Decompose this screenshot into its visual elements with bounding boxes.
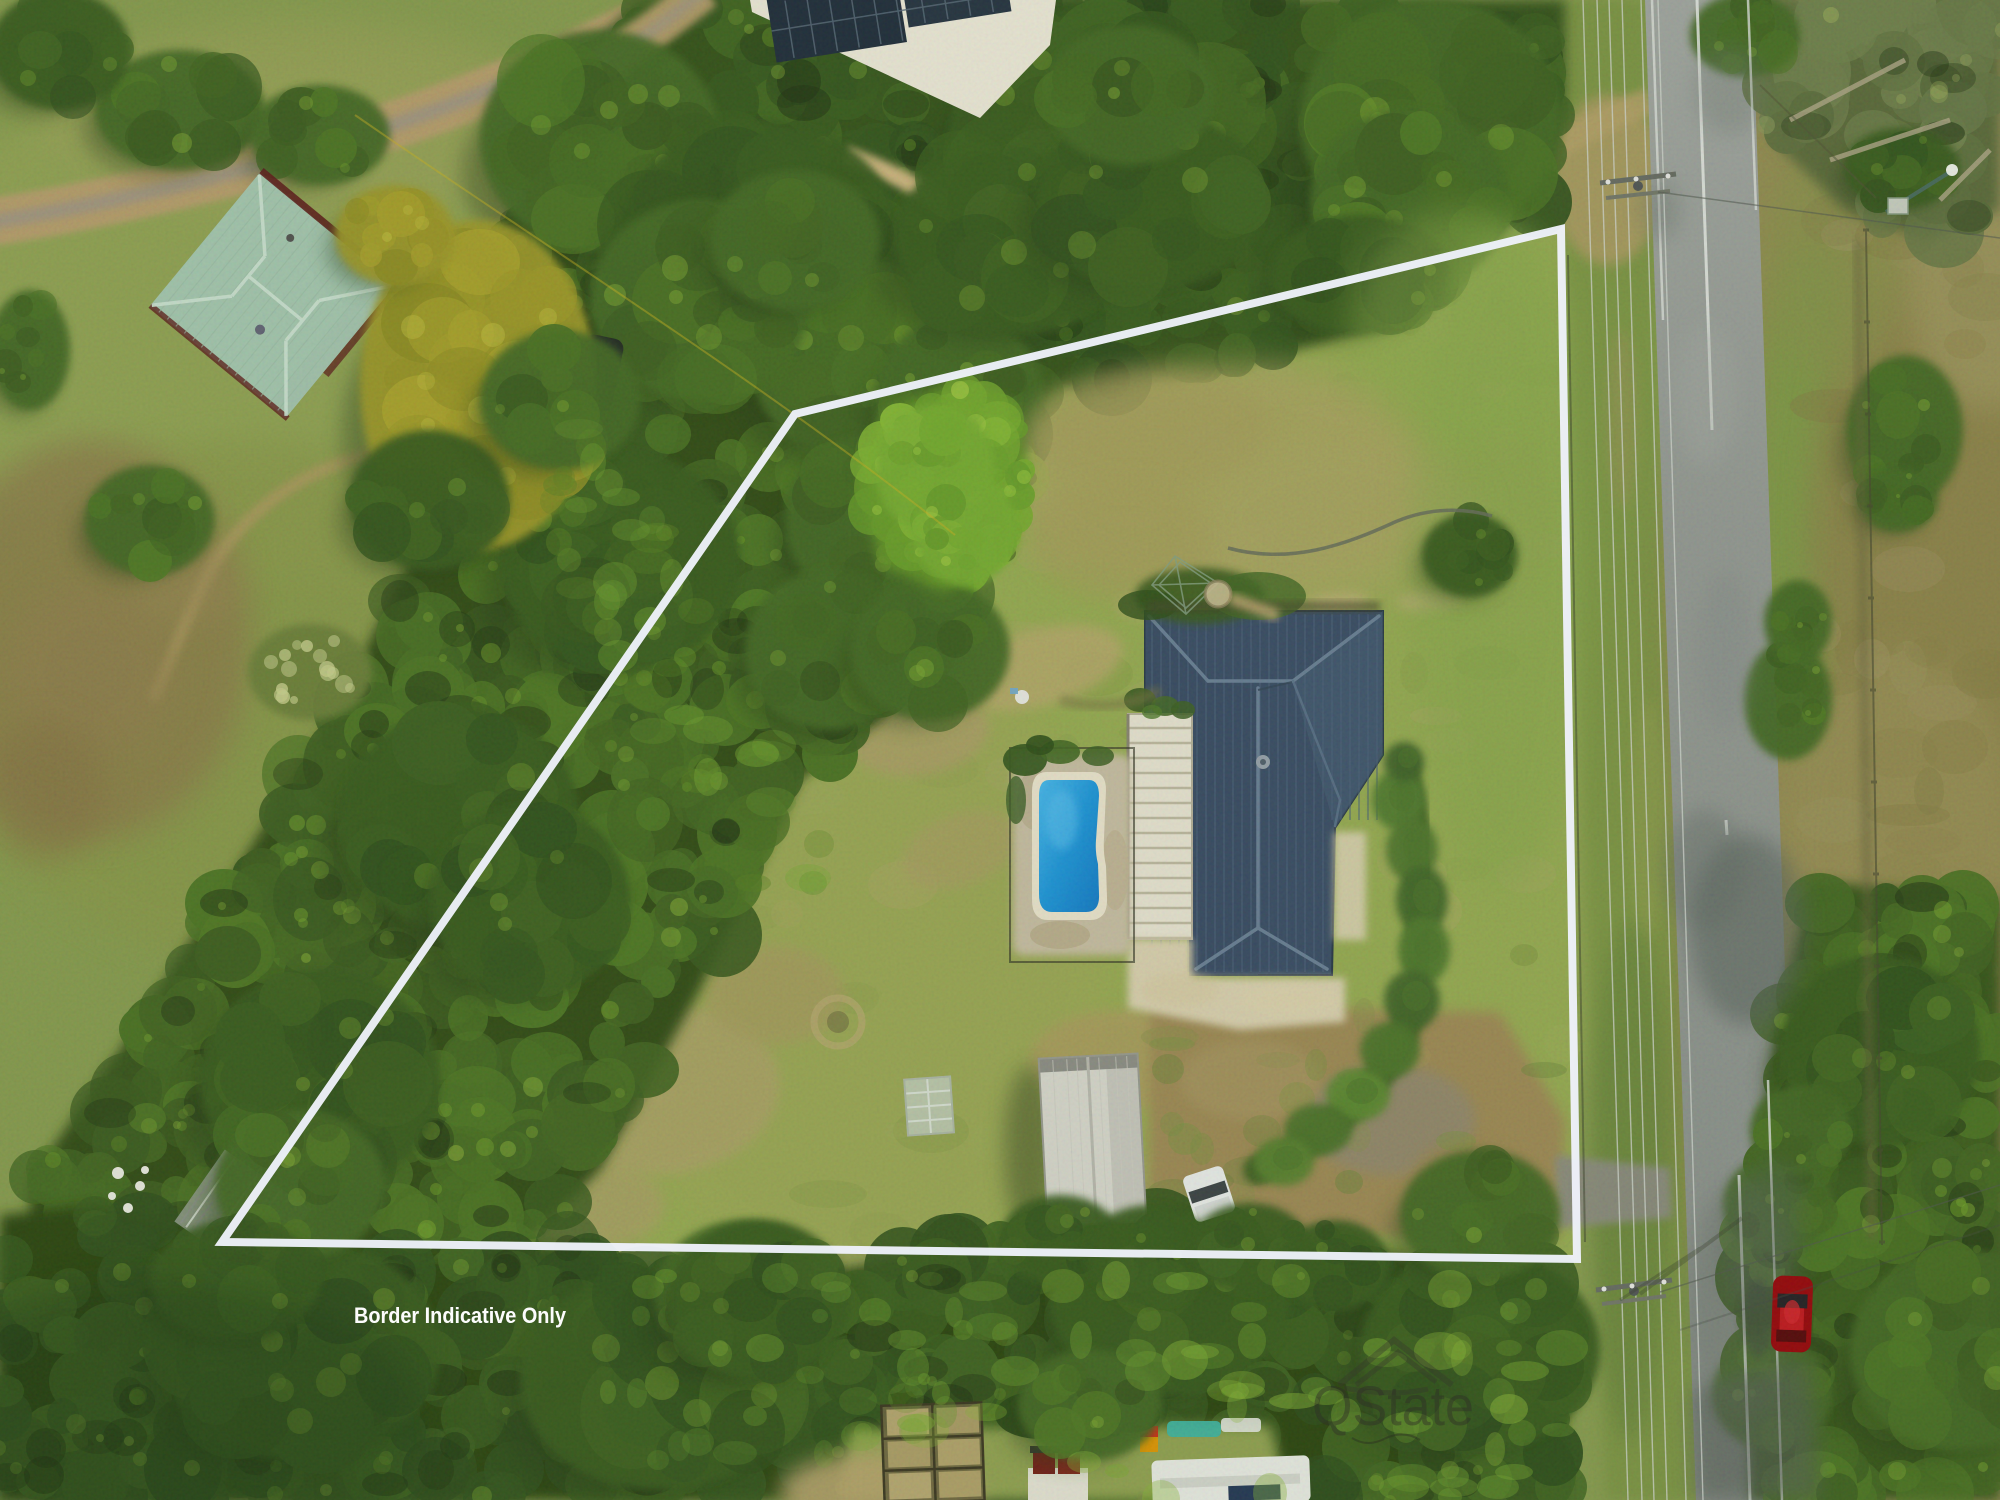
svg-text:Border Indicative Only: Border Indicative Only (354, 1303, 567, 1328)
svg-text:QState: QState (1312, 1374, 1474, 1437)
